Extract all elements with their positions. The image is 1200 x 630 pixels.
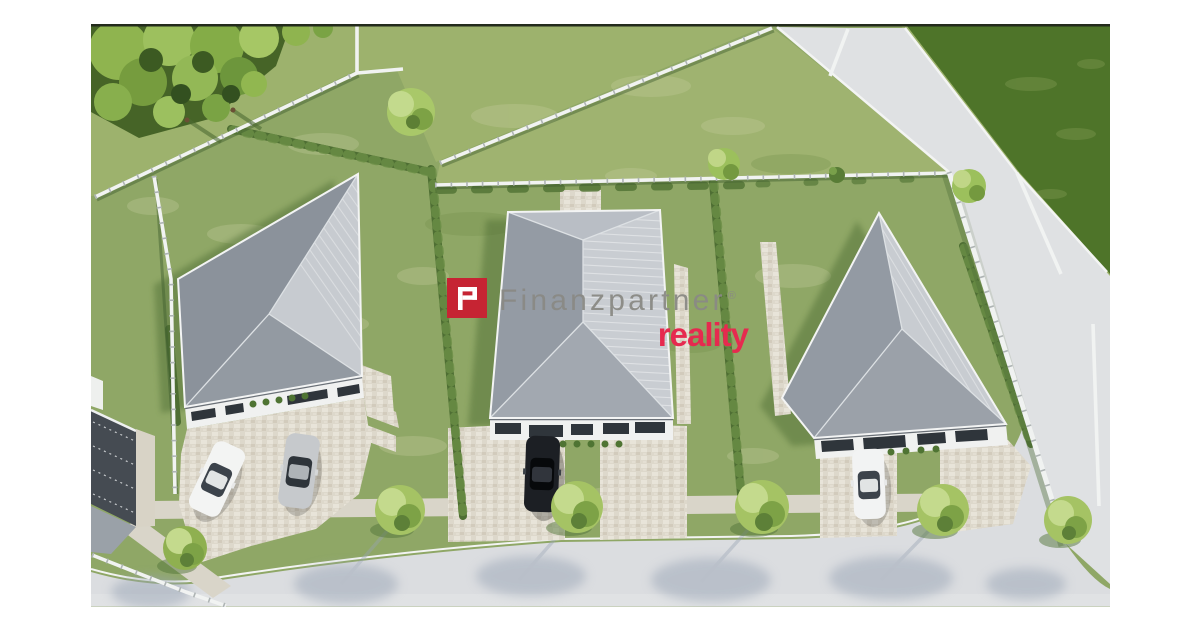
page-canvas: Finanzpartner® reality bbox=[0, 0, 1200, 630]
aerial-photo-art bbox=[91, 24, 1110, 607]
photo-top-edge bbox=[91, 24, 1110, 27]
aerial-photo: Finanzpartner® reality bbox=[91, 24, 1110, 607]
